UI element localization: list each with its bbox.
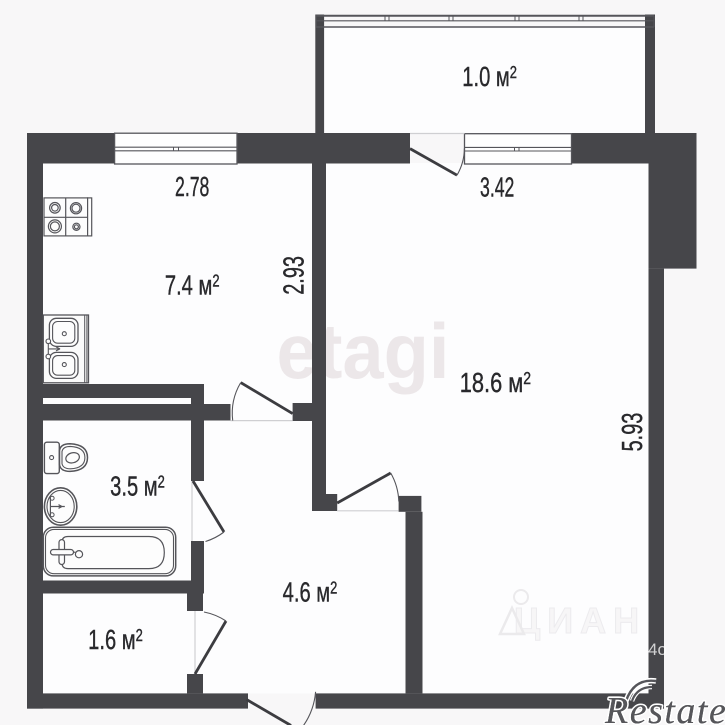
svg-text:Restate: Restate xyxy=(604,690,725,725)
svg-text:3.42: 3.42 xyxy=(480,171,514,202)
svg-text:4о: 4о xyxy=(648,640,667,659)
svg-text:4.6 м2: 4.6 м2 xyxy=(283,577,338,608)
svg-text:ЦИАН: ЦИАН xyxy=(514,600,646,641)
svg-text:2.78: 2.78 xyxy=(175,171,209,202)
svg-text:1.6 м2: 1.6 м2 xyxy=(88,625,143,656)
svg-text:18.6 м2: 18.6 м2 xyxy=(460,367,531,398)
svg-text:5.93: 5.93 xyxy=(618,413,649,452)
svg-text:3.5 м2: 3.5 м2 xyxy=(110,471,165,502)
svg-text:etagi: etagi xyxy=(277,308,450,395)
svg-text:2.93: 2.93 xyxy=(279,256,310,295)
svg-text:1.0 м2: 1.0 м2 xyxy=(462,62,517,93)
svg-text:7.4 м2: 7.4 м2 xyxy=(165,271,220,302)
